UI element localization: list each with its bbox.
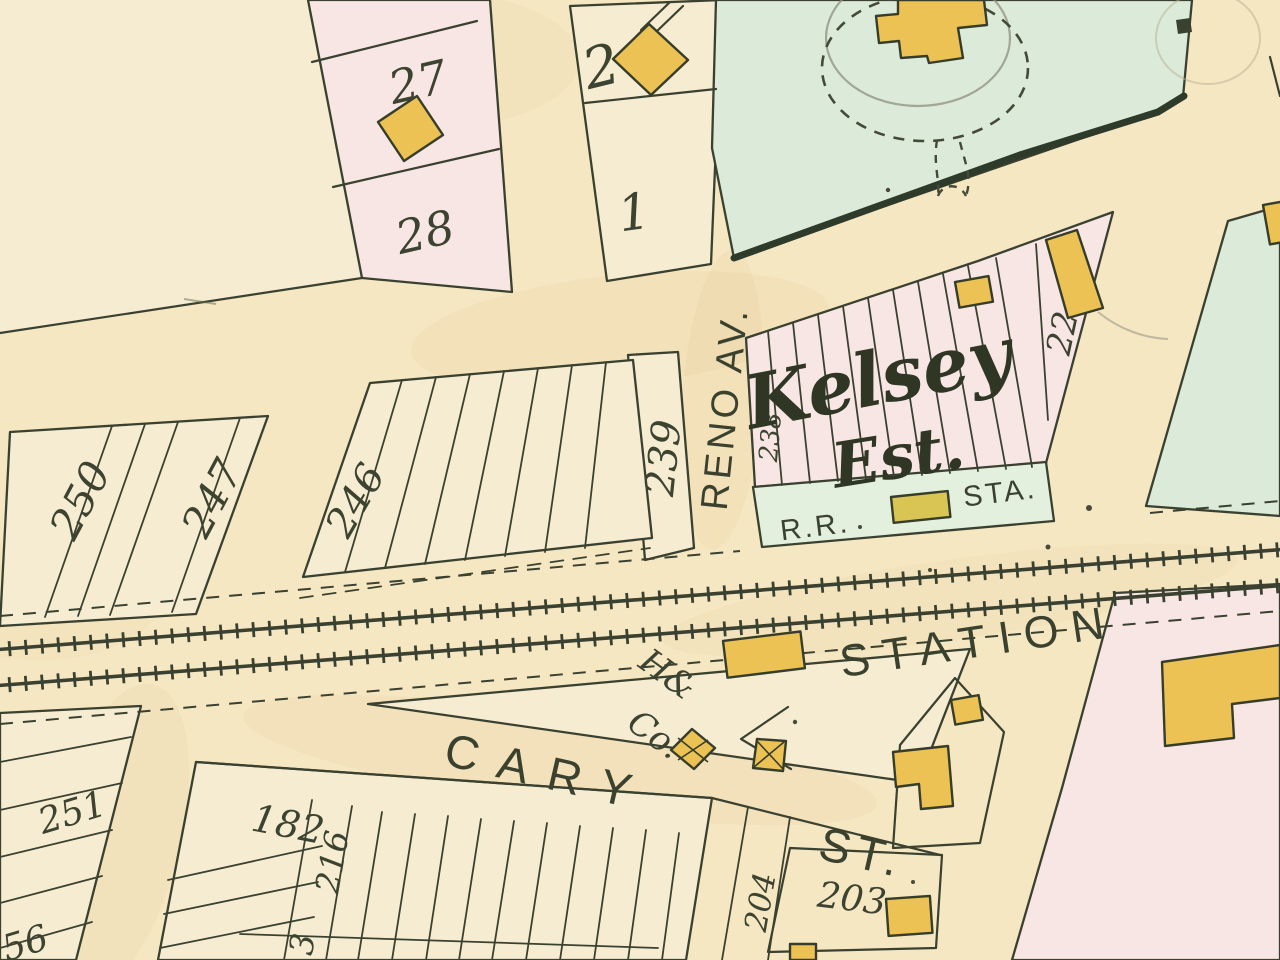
building-diamond-small bbox=[951, 695, 983, 724]
building-rr-depot bbox=[891, 491, 950, 523]
map-canvas[interactable]: 27 28 2 1 239 238 22 246 247 250 251 256… bbox=[0, 0, 1280, 960]
building-lot-203 bbox=[886, 896, 932, 936]
building-lot-203-south bbox=[790, 944, 816, 960]
lot-number-239: 239 bbox=[637, 418, 691, 500]
building-kelsey-small bbox=[955, 276, 993, 308]
parcel-top-left bbox=[0, 0, 362, 333]
building-station bbox=[723, 631, 805, 677]
